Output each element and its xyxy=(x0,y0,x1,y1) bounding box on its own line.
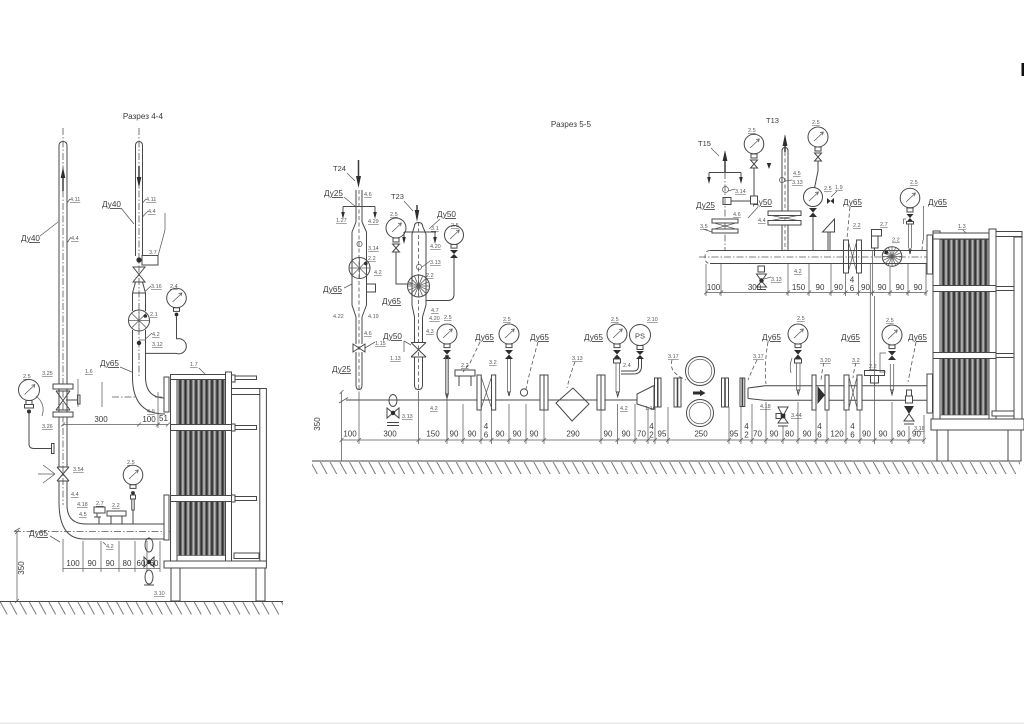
svg-text:4.19: 4.19 xyxy=(368,314,379,320)
svg-text:1.6: 1.6 xyxy=(85,369,93,375)
svg-text:Ду25: Ду25 xyxy=(696,201,715,210)
svg-text:2.10: 2.10 xyxy=(647,317,658,323)
svg-text:120: 120 xyxy=(830,430,844,439)
svg-text:Ду65: Ду65 xyxy=(928,198,947,207)
svg-text:3.54: 3.54 xyxy=(73,467,84,473)
svg-text:2.5: 2.5 xyxy=(503,317,511,323)
svg-text:4.5: 4.5 xyxy=(79,512,87,518)
svg-text:4.6: 4.6 xyxy=(364,331,372,337)
svg-text:90: 90 xyxy=(834,283,843,292)
svg-text:2.1: 2.1 xyxy=(150,312,158,318)
svg-text:4.2: 4.2 xyxy=(106,544,114,550)
svg-text:3.13: 3.13 xyxy=(430,260,441,266)
svg-text:90: 90 xyxy=(862,430,871,439)
svg-text:90: 90 xyxy=(530,430,539,439)
svg-text:90: 90 xyxy=(914,283,923,292)
svg-text:3.13: 3.13 xyxy=(792,180,803,186)
svg-text:350: 350 xyxy=(17,561,26,575)
svg-text:Ду65: Ду65 xyxy=(908,333,927,342)
svg-text:95: 95 xyxy=(730,430,739,439)
svg-text:Ду65: Ду65 xyxy=(762,333,781,342)
svg-text:90: 90 xyxy=(878,283,887,292)
svg-text:4.2: 4.2 xyxy=(794,269,802,275)
svg-text:95: 95 xyxy=(658,430,667,439)
svg-text:90: 90 xyxy=(897,430,906,439)
svg-text:2.2: 2.2 xyxy=(853,223,861,229)
svg-text:4.6: 4.6 xyxy=(733,212,741,218)
svg-text:2.5: 2.5 xyxy=(23,374,31,380)
svg-text:4.6: 4.6 xyxy=(364,192,372,198)
svg-text:3.2: 3.2 xyxy=(489,360,497,366)
svg-text:90: 90 xyxy=(88,559,97,568)
svg-text:3.13: 3.13 xyxy=(771,277,782,283)
svg-text:2.7: 2.7 xyxy=(96,501,104,507)
svg-text:100: 100 xyxy=(343,430,357,439)
svg-text:2.5: 2.5 xyxy=(812,120,820,126)
svg-text:70: 70 xyxy=(753,430,762,439)
svg-text:Ду65: Ду65 xyxy=(841,333,860,342)
svg-text:Ду40: Ду40 xyxy=(21,234,40,243)
svg-text:3.1: 3.1 xyxy=(431,226,439,232)
svg-text:90: 90 xyxy=(468,430,477,439)
svg-text:Ду25: Ду25 xyxy=(332,365,351,374)
svg-text:90: 90 xyxy=(861,283,870,292)
svg-text:4.29: 4.29 xyxy=(368,219,379,225)
svg-text:90: 90 xyxy=(816,283,825,292)
svg-text:300: 300 xyxy=(383,430,397,439)
svg-text:90: 90 xyxy=(879,430,888,439)
svg-text:90: 90 xyxy=(896,283,905,292)
svg-text:6: 6 xyxy=(850,284,855,293)
svg-text:4.11: 4.11 xyxy=(146,197,156,203)
svg-text:2.5: 2.5 xyxy=(611,317,619,323)
svg-text:90: 90 xyxy=(604,430,613,439)
svg-text:3.17: 3.17 xyxy=(753,354,764,360)
svg-text:Ду25: Ду25 xyxy=(324,189,343,198)
svg-text:4.2: 4.2 xyxy=(374,270,382,276)
svg-text:4.18: 4.18 xyxy=(760,404,771,410)
svg-text:2.4: 2.4 xyxy=(623,363,631,369)
svg-text:3.16: 3.16 xyxy=(151,284,162,290)
svg-text:Ду65: Ду65 xyxy=(382,297,401,306)
svg-text:300: 300 xyxy=(748,283,762,292)
svg-text:70: 70 xyxy=(637,430,646,439)
svg-text:4.11: 4.11 xyxy=(70,197,80,203)
svg-text:3.14: 3.14 xyxy=(368,246,379,252)
svg-text:3.44: 3.44 xyxy=(791,413,802,419)
svg-text:4.4: 4.4 xyxy=(71,236,79,242)
svg-text:2.2: 2.2 xyxy=(892,238,900,244)
svg-text:1.27: 1.27 xyxy=(336,218,347,224)
svg-text:90: 90 xyxy=(496,430,505,439)
svg-text:3.13: 3.13 xyxy=(572,356,583,362)
svg-text:T24: T24 xyxy=(333,164,346,173)
svg-text:3.14: 3.14 xyxy=(735,189,746,195)
svg-text:2.5: 2.5 xyxy=(390,212,398,218)
svg-text:4.4: 4.4 xyxy=(148,209,156,215)
svg-text:2.5: 2.5 xyxy=(886,318,894,324)
svg-text:51: 51 xyxy=(159,414,168,423)
svg-text:150: 150 xyxy=(426,430,440,439)
svg-text:80: 80 xyxy=(123,559,132,568)
svg-text:3.26: 3.26 xyxy=(42,424,53,430)
svg-text:6: 6 xyxy=(484,431,489,440)
svg-text:T23: T23 xyxy=(391,192,404,201)
svg-text:4.2: 4.2 xyxy=(620,406,628,412)
svg-text:90: 90 xyxy=(912,430,921,439)
svg-text:T13: T13 xyxy=(766,116,779,125)
svg-text:4.20: 4.20 xyxy=(430,244,441,250)
svg-text:2: 2 xyxy=(744,431,749,440)
svg-text:290: 290 xyxy=(566,430,580,439)
svg-text:4.20: 4.20 xyxy=(429,316,440,322)
svg-text:Ду65: Ду65 xyxy=(584,333,603,342)
svg-text:80: 80 xyxy=(785,430,794,439)
svg-text:4.22: 4.22 xyxy=(333,314,344,320)
svg-text:2.5: 2.5 xyxy=(444,315,452,321)
svg-text:2.5: 2.5 xyxy=(748,128,756,134)
svg-text:90: 90 xyxy=(513,430,522,439)
svg-text:1.9: 1.9 xyxy=(835,185,843,191)
svg-text:4.2: 4.2 xyxy=(430,406,438,412)
svg-text:2.5: 2.5 xyxy=(824,186,832,192)
svg-text:4.7: 4.7 xyxy=(431,308,439,314)
svg-text:2.2: 2.2 xyxy=(426,273,434,279)
svg-text:4.2: 4.2 xyxy=(152,332,160,338)
svg-text:2.5: 2.5 xyxy=(451,223,459,229)
svg-text:Ду65: Ду65 xyxy=(29,529,48,538)
svg-text:Разрез 4-4: Разрез 4-4 xyxy=(123,112,164,121)
svg-text:2.2: 2.2 xyxy=(112,503,120,509)
svg-text:Ду65: Ду65 xyxy=(475,333,494,342)
svg-text:2.7: 2.7 xyxy=(880,222,888,228)
svg-text:Ду40: Ду40 xyxy=(102,200,121,209)
svg-text:100: 100 xyxy=(66,559,80,568)
svg-text:Ду50: Ду50 xyxy=(437,210,456,219)
svg-text:2.5: 2.5 xyxy=(797,316,805,322)
svg-text:2.4: 2.4 xyxy=(170,284,178,290)
svg-text:60: 60 xyxy=(137,559,146,568)
svg-text:1.7: 1.7 xyxy=(190,362,198,368)
svg-text:Разрез 5-5: Разрез 5-5 xyxy=(551,120,592,129)
svg-text:150: 150 xyxy=(792,283,806,292)
svg-text:3.13: 3.13 xyxy=(402,414,413,420)
svg-text:Ду65: Ду65 xyxy=(530,333,549,342)
svg-text:350: 350 xyxy=(313,417,322,431)
svg-text:300: 300 xyxy=(94,415,108,424)
svg-text:4.18: 4.18 xyxy=(77,502,88,508)
svg-text:3.7: 3.7 xyxy=(149,250,157,256)
svg-text:4.5: 4.5 xyxy=(793,171,801,177)
svg-text:3.17: 3.17 xyxy=(668,354,679,360)
svg-text:T15: T15 xyxy=(698,139,711,148)
svg-text:2.2: 2.2 xyxy=(368,256,376,262)
svg-text:3.25: 3.25 xyxy=(42,371,53,377)
svg-text:3.20: 3.20 xyxy=(820,358,831,364)
svg-text:PS: PS xyxy=(635,332,645,341)
svg-text:Ду65: Ду65 xyxy=(100,359,119,368)
svg-text:100: 100 xyxy=(707,283,721,292)
svg-text:1.16: 1.16 xyxy=(645,406,656,412)
svg-text:100: 100 xyxy=(142,415,156,424)
svg-text:90: 90 xyxy=(770,430,779,439)
svg-text:90: 90 xyxy=(450,430,459,439)
svg-text:60: 60 xyxy=(150,559,159,568)
svg-text:6: 6 xyxy=(850,431,855,440)
svg-text:1.15: 1.15 xyxy=(375,341,386,347)
svg-text:4.4: 4.4 xyxy=(71,492,79,498)
svg-text:90: 90 xyxy=(106,559,115,568)
svg-text:1.3: 1.3 xyxy=(958,224,966,230)
svg-text:3.10: 3.10 xyxy=(154,591,165,597)
svg-text:2.5: 2.5 xyxy=(910,180,918,186)
svg-text:Ду50: Ду50 xyxy=(383,332,402,341)
svg-text:4.4: 4.4 xyxy=(758,218,766,224)
svg-text:Ду65: Ду65 xyxy=(843,198,862,207)
svg-text:90: 90 xyxy=(803,430,812,439)
svg-text:90: 90 xyxy=(622,430,631,439)
svg-text:2.5: 2.5 xyxy=(127,460,135,466)
svg-text:4.3: 4.3 xyxy=(426,329,434,335)
svg-text:3.12: 3.12 xyxy=(152,342,163,348)
svg-text:Ду65: Ду65 xyxy=(323,285,342,294)
svg-text:250: 250 xyxy=(694,430,708,439)
svg-text:1.13: 1.13 xyxy=(390,356,401,362)
